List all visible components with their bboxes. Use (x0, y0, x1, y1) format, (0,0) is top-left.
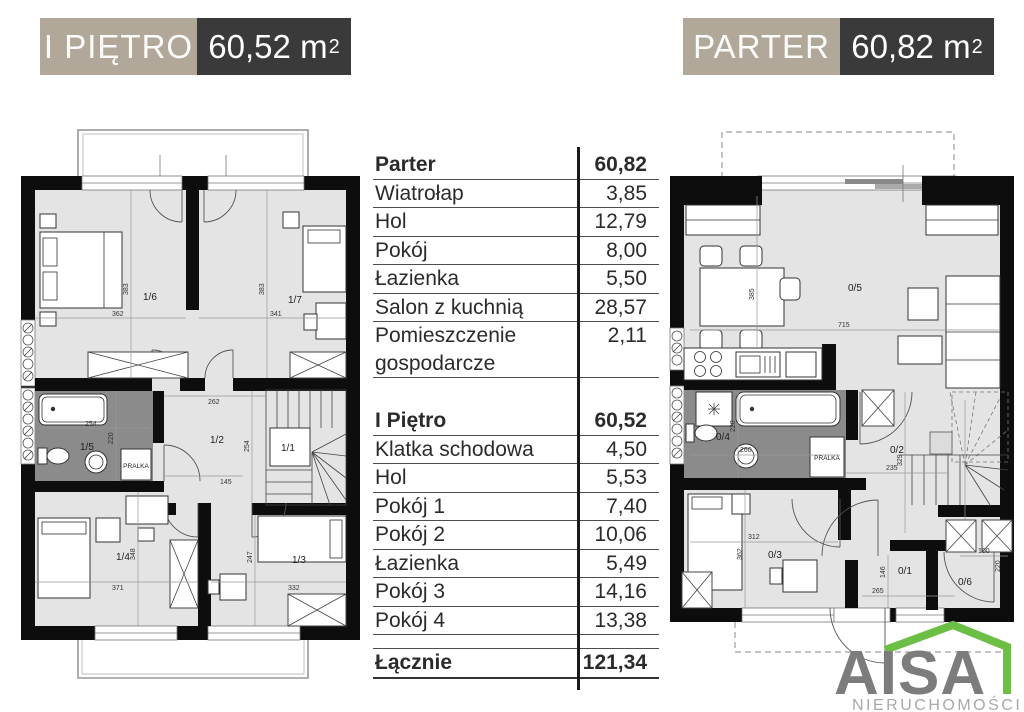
room-label-1-1: 1/1 (281, 443, 295, 454)
dim: 362 (737, 548, 744, 560)
room-label-1-7: 1/7 (288, 295, 302, 306)
table-section-header-parter: Parter 60,82 (373, 151, 659, 180)
dim: 260 (740, 447, 752, 454)
logo-subtitle: NIERUCHOMOŚCI (852, 695, 1022, 712)
room-area: 5,53 (570, 464, 659, 492)
room-label-0-5: 0/5 (848, 283, 862, 294)
room-area: 10,06 (570, 521, 659, 549)
table-row: Hol5,53 (373, 464, 659, 493)
table-row: Klatka schodowa4,50 (373, 436, 659, 465)
room-label-1-2: 1/2 (210, 435, 224, 446)
room-area: 8,00 (570, 237, 659, 265)
room-name: Pokój 2 (373, 521, 570, 549)
room-label-0-1: 0/1 (898, 566, 912, 577)
room-label-1-5: 1/5 (80, 442, 94, 453)
total-label: Łącznie (373, 649, 570, 677)
floorplan-first-floor: PRALKA (15, 120, 367, 682)
table-row: Pokój 314,16 (373, 578, 659, 607)
dim: 332 (288, 585, 300, 592)
bathroom-first-floor: PRALKA (35, 391, 153, 481)
table-row: Pokój 210,06 (373, 521, 659, 550)
section-name: Parter (373, 151, 570, 179)
area-unit: m (943, 28, 971, 66)
room-label-1-4: 1/4 (116, 552, 130, 563)
floor-area-ground-floor: 60,82 m2 (840, 18, 994, 75)
radiator-icons (672, 331, 682, 458)
room-area: 28,57 (570, 294, 659, 322)
area-table: Parter 60,82 Wiatrołap3,85 Hol12,79 Pokó… (373, 151, 659, 679)
room-name: Klatka schodowa (373, 436, 570, 464)
room-area: 13,38 (570, 607, 659, 635)
table-row: Hol12,79 (373, 208, 659, 237)
room-name: Pokój (373, 237, 570, 265)
room-label-1-3: 1/3 (292, 555, 306, 566)
terrace-outline (78, 640, 308, 678)
room-area: 3,85 (570, 180, 659, 208)
room-area: 7,40 (570, 493, 659, 521)
area-value: 60,82 (851, 28, 934, 66)
table-total-row: Łącznie 121,34 (373, 649, 659, 679)
dim: 220 (730, 420, 737, 432)
dim: 220 (108, 432, 115, 444)
dim: 383 (259, 283, 266, 295)
room-name: Pomieszczenie gospodarcze (373, 322, 570, 377)
floorplan-ground-floor: PRALKA (658, 124, 1024, 686)
room-label-0-3: 0/3 (768, 550, 782, 561)
dim: 362 (112, 311, 124, 318)
table-row: Pokój8,00 (373, 237, 659, 266)
dim: 329 (897, 454, 904, 466)
room-name: Pokój 4 (373, 607, 570, 635)
table-row: Salon z kuchnią28,57 (373, 294, 659, 323)
table-row: Pokój 17,40 (373, 493, 659, 522)
room-name: Wiatrołap (373, 180, 570, 208)
table-row: Pokój 413,38 (373, 607, 659, 636)
table-column-divider (577, 147, 580, 690)
room-area: 4,50 (570, 436, 659, 464)
dim: 100 (978, 548, 990, 555)
room-label-0-4: 0/4 (716, 432, 730, 443)
floor-label-first-floor: I PIĘTRO 60,52 m2 (40, 18, 351, 75)
table-row: Łazienka5,49 (373, 550, 659, 579)
dim: 145 (220, 479, 232, 486)
dim: 262 (208, 399, 220, 406)
total-value: 121,34 (570, 649, 659, 677)
table-row: Pomieszczenie gospodarcze2,11 (373, 322, 659, 378)
room-name: Łazienka (373, 265, 570, 293)
dim: 385 (749, 288, 756, 300)
room-name: Pokój 1 (373, 493, 570, 521)
room-name: Pokój 3 (373, 578, 570, 606)
dim: 254 (85, 421, 97, 428)
room-area: 5,50 (570, 265, 659, 293)
room-name: Hol (373, 464, 570, 492)
dim: 371 (112, 585, 124, 592)
table-row: Wiatrołap3,85 (373, 180, 659, 209)
dim: 254 (244, 440, 251, 452)
floor-name-ground-floor: PARTER (683, 18, 840, 75)
balcony (78, 130, 308, 177)
room-name: Salon z kuchnią (373, 294, 570, 322)
room-area: 14,16 (570, 578, 659, 606)
radiator-icons (23, 323, 33, 460)
floor-area-first-floor: 60,52 m2 (197, 18, 351, 75)
room-area: 12,79 (570, 208, 659, 236)
washer-label: PRALKA (814, 455, 840, 462)
dim: 146 (880, 566, 887, 578)
floor-name-first-floor: I PIĘTRO (40, 18, 197, 75)
room-name: Łazienka (373, 550, 570, 578)
table-section-header-pietro: I Piętro 60,52 (373, 407, 659, 436)
dim: 715 (838, 322, 850, 329)
dim: 265 (872, 588, 884, 595)
floorplan-sheet: I PIĘTRO 60,52 m2 PARTER 60,82 m2 (0, 0, 1024, 712)
kitchen-counter (684, 348, 822, 380)
section-name: I Piętro (373, 407, 570, 435)
dim: 247 (247, 551, 254, 563)
section-area: 60,82 (570, 151, 659, 179)
dim: 341 (270, 311, 282, 318)
aisa-logo: AISA NIERUCHOMOŚCI (832, 620, 1024, 712)
section-area: 60,52 (570, 407, 659, 435)
dim: 383 (123, 283, 130, 295)
area-value: 60,52 (208, 28, 291, 66)
floor-label-ground-floor: PARTER 60,82 m2 (683, 18, 994, 75)
room-area: 5,49 (570, 550, 659, 578)
table-spacer (373, 635, 659, 649)
area-unit: m (300, 28, 328, 66)
washer-label: PRALKA (123, 463, 149, 470)
table-row: Łazienka5,50 (373, 265, 659, 294)
room-name: Hol (373, 208, 570, 236)
dim: 312 (748, 534, 760, 541)
room-label-1-6: 1/6 (143, 292, 157, 303)
room-label-0-6: 0/6 (958, 577, 972, 588)
room-area: 2,11 (570, 322, 659, 377)
dim: 348 (130, 548, 137, 560)
dim: 220 (995, 560, 1002, 572)
